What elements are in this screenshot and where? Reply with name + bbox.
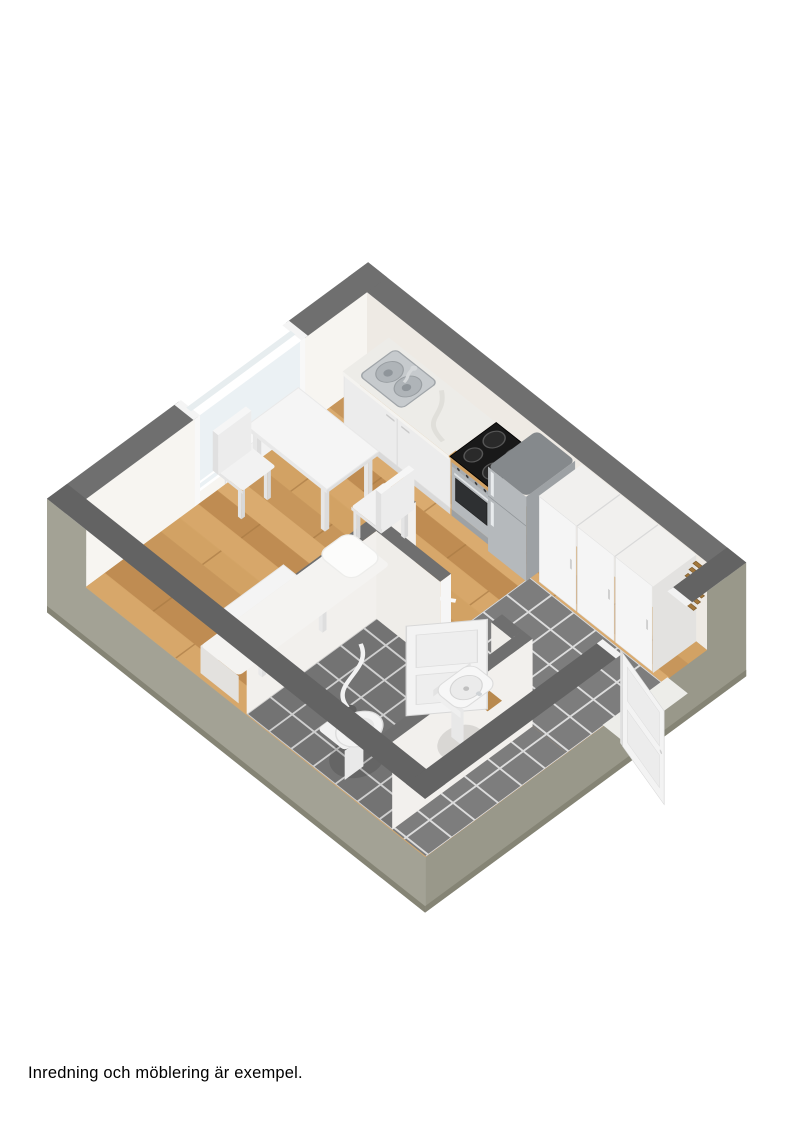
leg-side bbox=[267, 470, 271, 501]
page: Inredning och möblering är exempel. bbox=[0, 0, 800, 1131]
building bbox=[47, 262, 746, 912]
chair-back-edge bbox=[376, 490, 381, 534]
leg-face bbox=[238, 489, 241, 520]
floorplan-3d-render bbox=[0, 0, 800, 1131]
caption-text: Inredning och möblering är exempel. bbox=[28, 1064, 303, 1083]
chair-back-edge bbox=[213, 431, 218, 475]
